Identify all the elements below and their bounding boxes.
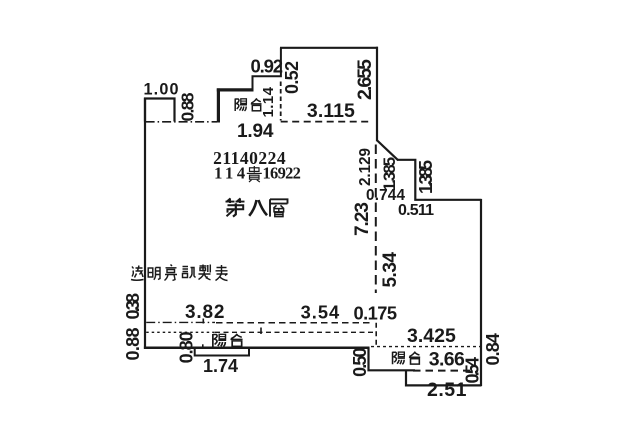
svg-text:7.23: 7.23	[352, 202, 373, 236]
svg-text:1.385: 1.385	[416, 160, 436, 194]
svg-text:0.88: 0.88	[123, 328, 143, 361]
svg-text:3.82: 3.82	[185, 302, 225, 323]
svg-text:0.175: 0.175	[354, 302, 398, 323]
svg-text:3.54: 3.54	[301, 301, 340, 322]
svg-text:0.38: 0.38	[123, 293, 143, 320]
svg-text:0.54: 0.54	[463, 357, 483, 384]
svg-text:114: 114	[214, 164, 245, 183]
svg-text:3.115: 3.115	[307, 100, 355, 122]
svg-text:1.74: 1.74	[203, 356, 238, 376]
svg-text:0.92: 0.92	[251, 56, 284, 77]
svg-text:0.88: 0.88	[178, 92, 198, 121]
svg-text:2.655: 2.655	[354, 59, 376, 100]
svg-text:5.34: 5.34	[380, 252, 401, 288]
svg-text:2.129: 2.129	[357, 148, 374, 186]
svg-text:16922: 16922	[263, 164, 301, 183]
svg-text:0.84: 0.84	[483, 333, 503, 365]
svg-text:0.52: 0.52	[282, 61, 302, 94]
svg-text:0.50: 0.50	[350, 348, 370, 377]
svg-text:1.385: 1.385	[380, 157, 399, 191]
svg-text:1.14: 1.14	[260, 86, 277, 117]
svg-text:2.51: 2.51	[427, 379, 467, 401]
svg-text:1.94: 1.94	[237, 121, 274, 142]
svg-text:1.00: 1.00	[144, 81, 179, 99]
svg-text:3.425: 3.425	[407, 325, 456, 347]
svg-text:0.511: 0.511	[398, 202, 434, 219]
svg-text:3.66: 3.66	[429, 349, 465, 371]
svg-text:0.80: 0.80	[176, 331, 196, 363]
